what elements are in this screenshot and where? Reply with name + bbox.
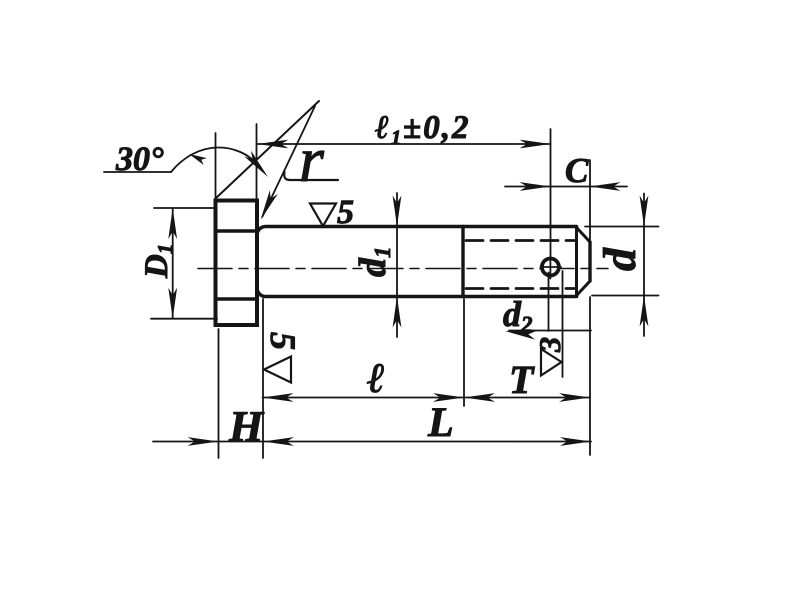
svg-text:C: C	[565, 151, 589, 190]
svg-text:T: T	[509, 357, 535, 402]
svg-text:ℓ: ℓ	[367, 356, 385, 402]
svg-text:r: r	[299, 124, 325, 195]
svg-text:30°: 30°	[115, 141, 164, 178]
svg-text:D1: D1	[139, 244, 177, 279]
svg-text:ℓ1±0,2: ℓ1±0,2	[375, 110, 470, 149]
svg-text:L: L	[427, 400, 454, 446]
svg-text:d1: d1	[352, 247, 395, 278]
svg-text:5: 5	[337, 194, 354, 231]
svg-text:5: 5	[263, 332, 303, 350]
svg-text:d: d	[594, 247, 645, 271]
svg-text:H: H	[228, 402, 265, 451]
